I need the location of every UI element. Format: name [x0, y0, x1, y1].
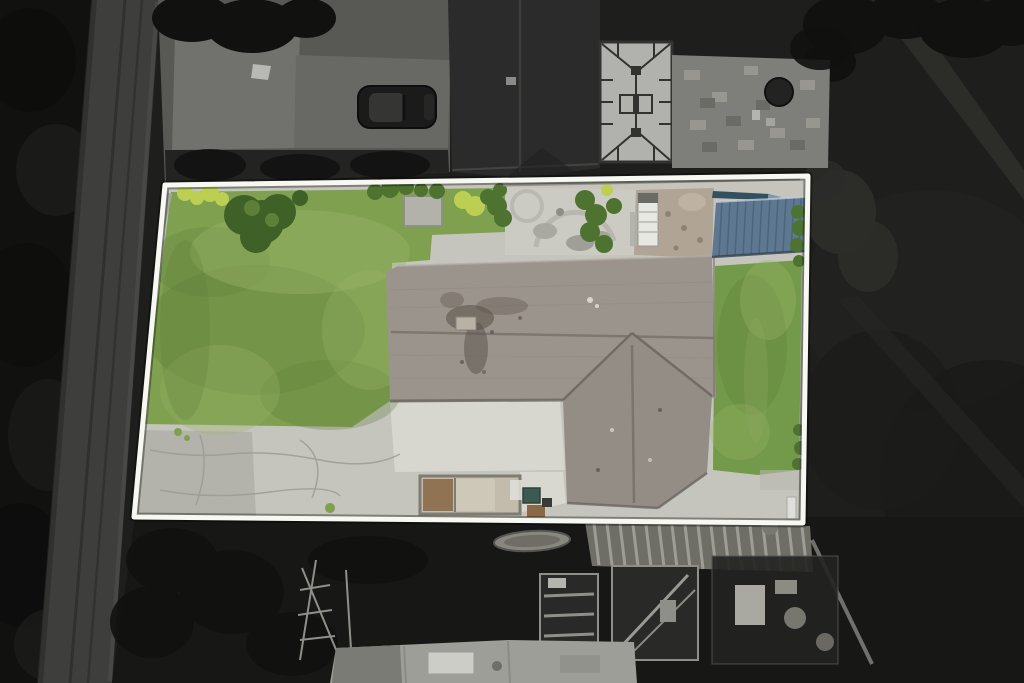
parked-car [358, 86, 436, 128]
back-yard [110, 517, 1024, 683]
conservatory-roof [600, 42, 672, 162]
bin [523, 488, 540, 503]
garden-table [765, 78, 793, 106]
top-patio [505, 187, 636, 255]
neighbor-roof [448, 0, 600, 178]
lawn-right [710, 260, 802, 475]
bottom-building [330, 640, 637, 683]
plot-interior [134, 176, 808, 523]
pavement-mark [251, 64, 271, 80]
neighbor-chimney [506, 77, 516, 85]
aerial-photo-stage [0, 0, 1024, 683]
chimney [456, 317, 476, 330]
white-post [787, 497, 796, 519]
property-plot [134, 176, 808, 523]
aerial-photo [0, 0, 1024, 683]
concrete-pad [404, 196, 442, 226]
